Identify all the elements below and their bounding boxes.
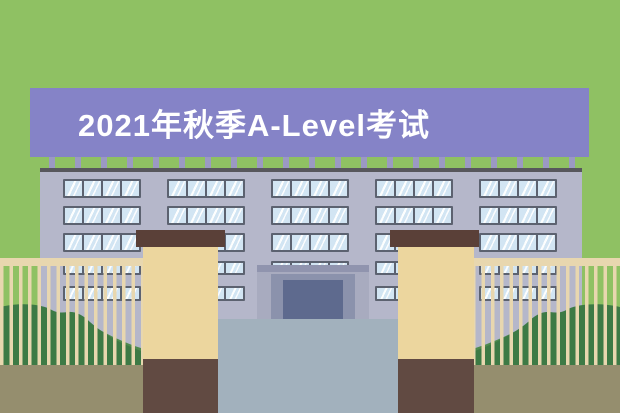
- gate-pillar-right-body: [398, 247, 474, 359]
- page-background: { "banner": { "text": "2021年秋季A-Level考试"…: [0, 0, 620, 413]
- ground-left: [0, 365, 144, 413]
- gate-pillar-right-cap: [390, 230, 479, 247]
- ground-right: [472, 365, 620, 413]
- campus-illustration: 2021年秋季A-Level考试: [0, 0, 620, 413]
- roof-parapet: [40, 157, 582, 168]
- fence-bars-left: [0, 258, 144, 365]
- gate-pillar-left-body: [143, 247, 218, 359]
- gate-pillar-left-base: [143, 359, 218, 413]
- entrance-lintel: [257, 265, 369, 272]
- banner: 2021年秋季A-Level考试: [30, 88, 589, 157]
- banner-title: 2021年秋季A-Level考试: [30, 100, 430, 145]
- gate-pillar-left-cap: [136, 230, 225, 247]
- courtyard-walkway: [218, 319, 398, 413]
- fence-bars-right: [472, 258, 620, 365]
- gate-pillar-right-base: [398, 359, 474, 413]
- entrance-door: [283, 280, 343, 320]
